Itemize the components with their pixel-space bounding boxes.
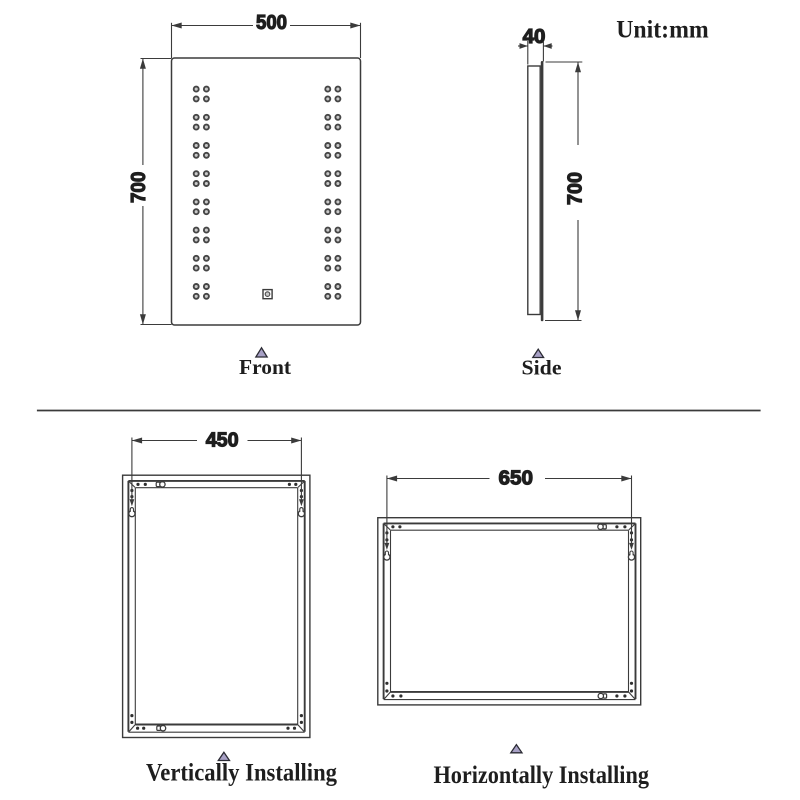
- svg-text:500: 500: [256, 11, 287, 34]
- svg-text:40: 40: [523, 25, 546, 48]
- svg-text:Unit:mm: Unit:mm: [616, 17, 709, 44]
- svg-text:650: 650: [499, 467, 534, 490]
- svg-text:700: 700: [127, 172, 150, 204]
- svg-text:450: 450: [206, 429, 239, 452]
- svg-text:Side: Side: [522, 356, 562, 380]
- svg-text:Front: Front: [239, 355, 292, 379]
- svg-text:Vertically Installing: Vertically Installing: [146, 759, 337, 786]
- svg-text:700: 700: [564, 172, 587, 205]
- svg-text:Horizontally Installing: Horizontally Installing: [433, 762, 649, 789]
